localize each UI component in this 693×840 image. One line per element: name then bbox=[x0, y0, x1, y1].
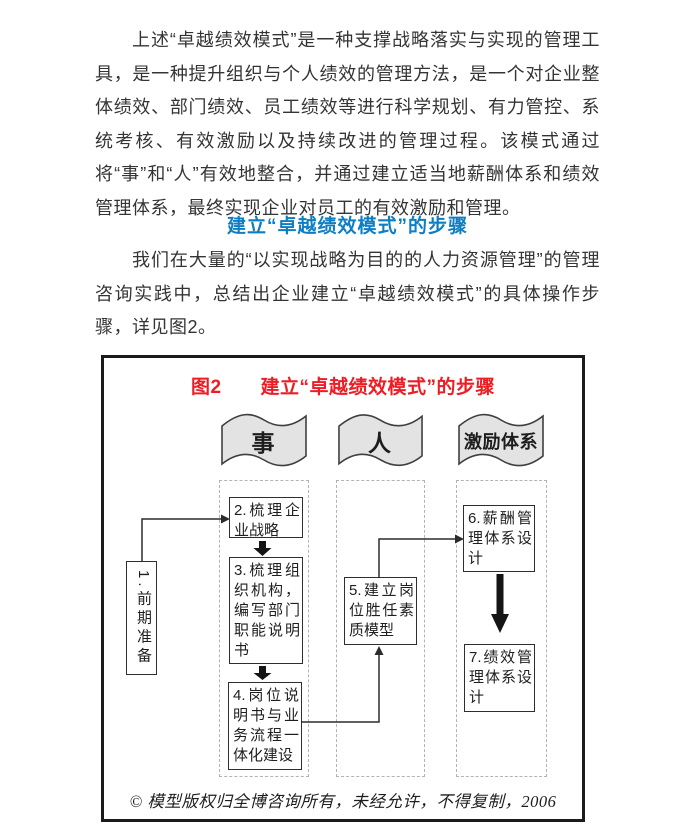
step-box-6-compensation-system: 6.薪酬管理体系设计 bbox=[463, 505, 535, 572]
connector-step4-to-step5 bbox=[302, 654, 379, 722]
thick-arrow-step3-to-step4 bbox=[254, 666, 272, 680]
step-box-2-strategy: 2.梳理企业战略 bbox=[229, 497, 303, 538]
connector-step1-to-step2 bbox=[142, 519, 222, 561]
figure-2-diagram: 图2 建立“卓越绩效模式”的步骤 事 人 激励体系 bbox=[101, 355, 585, 822]
document-page: 上述“卓越绩效模式”是一种支撑战略落实与实现的管理工具，是一种提升组织与个人绩效… bbox=[0, 0, 693, 840]
step-box-7-performance-system: 7.绩效管理体系设计 bbox=[464, 644, 535, 712]
step-box-3-organization: 3.梳理组织机构，编写部门职能说明书 bbox=[229, 557, 303, 664]
thick-arrow-step2-to-step3 bbox=[254, 541, 272, 556]
step-box-4-job-description: 4.岗位说明书与业务流程一体化建设 bbox=[228, 682, 302, 770]
figure-copyright: © 模型版权归全博咨询所有，未经允许，不得复制，2006 bbox=[104, 788, 582, 812]
step-box-5-competency-model: 5.建立岗位胜任素质模型 bbox=[344, 577, 417, 645]
arrowhead-into-step5 bbox=[375, 646, 384, 655]
section-heading: 建立“卓越绩效模式”的步骤 bbox=[95, 211, 600, 238]
paragraph-2: 我们在大量的“以实现战略为目的的人力资源管理”的管理咨询实践中，总结出企业建立“… bbox=[95, 244, 600, 345]
step-box-1-preparation: 1.前期准备 bbox=[126, 561, 157, 675]
connector-step5-to-step6 bbox=[379, 539, 456, 577]
flow-connectors bbox=[104, 358, 582, 819]
thick-arrow-step6-to-step7 bbox=[491, 574, 509, 633]
paragraph-1: 上述“卓越绩效模式”是一种支撑战略落实与实现的管理工具，是一种提升组织与个人绩效… bbox=[95, 24, 600, 225]
